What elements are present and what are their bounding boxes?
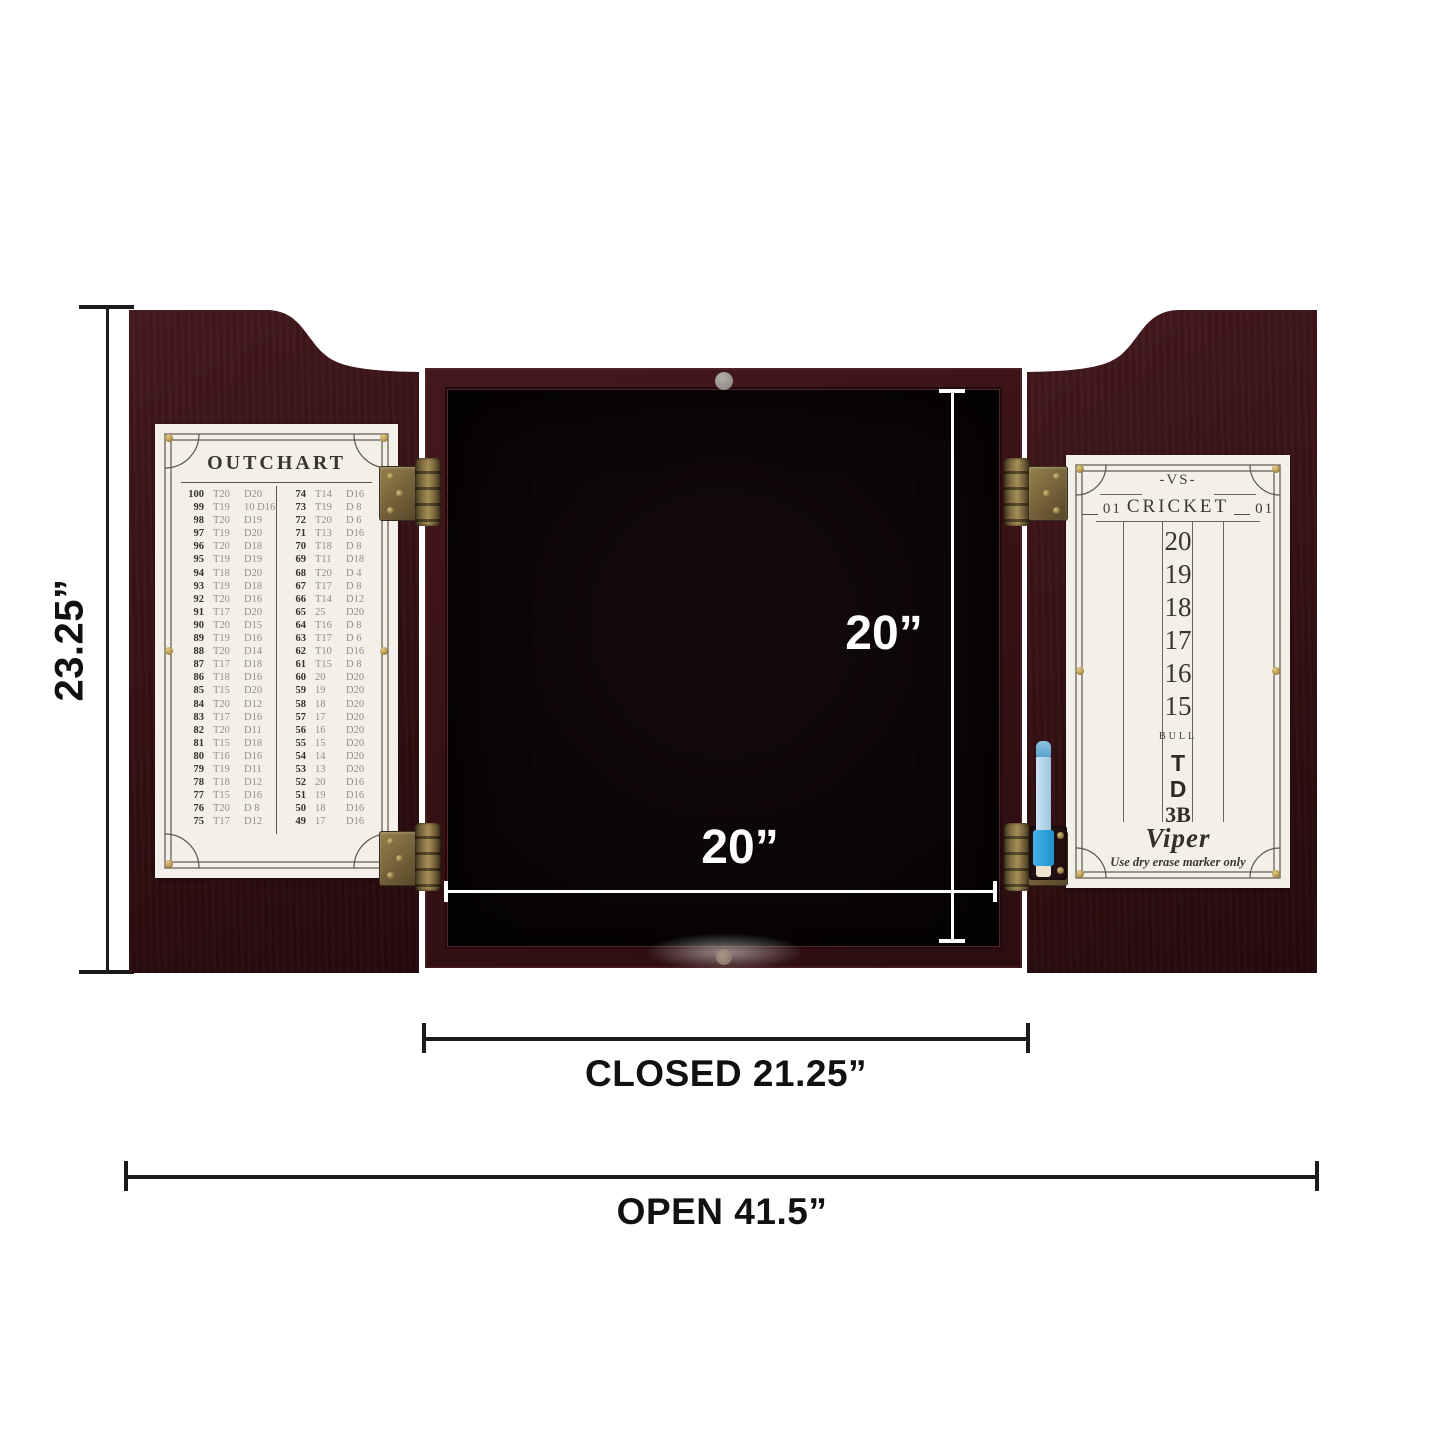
board-width-label: 20” [680,820,800,875]
open-width-label: OPEN 41.5” [422,1191,1022,1233]
outchart-row: 79T19D11 [180,763,273,776]
outchart-row: 77T15D16 [180,789,273,802]
cricket-target: 15 [1165,690,1192,723]
dry-erase-note: Use dry erase marker only [1066,855,1290,870]
cricket-target-column: 201918171615BULLTD3B [1156,525,1200,828]
outchart-row: 70T18D 8 [282,540,375,553]
outchart-row: 86T18D16 [180,671,273,684]
outchart-row: 76T20D 8 [180,802,273,815]
cricket-scoreboard-card: -VS- 01CRICKET01 201918171615BULLTD3B Vi… [1066,455,1290,888]
outchart-row: 93T19D18 [180,580,273,593]
dartboard-cabinet-body [425,368,1022,968]
hinge-plate [1028,466,1068,521]
marker-cap [1036,741,1051,757]
outchart-row: 5220D16 [282,776,375,789]
dry-erase-marker [1036,757,1051,830]
outchart-row: 81T15D18 [180,737,273,750]
board-width-cap-right [993,881,997,902]
vs-label: -VS- [1066,472,1290,489]
outchart-row: 99T1910 D16 [180,501,273,514]
cricket-header: 01CRICKET01 [1066,499,1290,518]
outchart-row: 92T20D16 [180,593,273,606]
outchart-row: 62T10D16 [282,645,375,658]
outchart-row: 84T20D12 [180,698,273,711]
outchart-row: 63T17D 6 [282,632,375,645]
outchart-row: 83T17D16 [180,711,273,724]
board-width-dimension-line [446,890,995,893]
outchart-row: 85T15D20 [180,684,273,697]
outchart-row: 5515D20 [282,737,375,750]
outchart-row: 61T15D 8 [282,658,375,671]
card-screw [165,434,173,442]
outchart-row: 5717D20 [282,711,375,724]
card-screw [1076,465,1084,473]
player-name-line-left [1100,494,1142,495]
outchart-row: 5616D20 [282,724,375,737]
outchart-row: 89T19D16 [180,632,273,645]
outchart-row: 95T19D19 [180,553,273,566]
cricket-target: 20 [1165,525,1192,558]
outchart-row: 71T13D16 [282,527,375,540]
height-dimension-label: 23.25” [48,578,93,701]
mounting-hole-bottom [716,949,732,965]
outchart-row: 4917D16 [282,815,375,828]
outchart-row: 6525D20 [282,606,375,619]
outchart-row: 6020D20 [282,671,375,684]
hinge-barrel [1004,823,1030,891]
cricket-target: D [1170,776,1187,802]
outchart-row: 94T18D20 [180,567,273,580]
outchart-row: 87T17D18 [180,658,273,671]
cricket-target: BULL [1159,723,1197,750]
outchart-row: 82T20D11 [180,724,273,737]
closed-width-dimension-line [424,1037,1028,1041]
outchart-row: 5818D20 [282,698,375,711]
cricket-target: 19 [1165,558,1192,591]
outchart-row: 88T20D14 [180,645,273,658]
outchart-title-underline [181,482,372,483]
outchart-title: OUTCHART [155,452,398,475]
board-height-label: 20” [824,606,944,661]
hinge-barrel [415,823,441,891]
cricket-target: 18 [1165,591,1192,624]
board-height-cap-bottom [939,939,965,943]
card-screw [1076,870,1084,878]
outchart-row: 73T19D 8 [282,501,375,514]
outchart-row: 66T14D12 [282,593,375,606]
closed-width-cap-left [422,1023,426,1053]
card-screw [1272,465,1280,473]
score-grid-line [1123,522,1124,822]
outchart-row: 5919D20 [282,684,375,697]
cricket-title: CRICKET [1127,496,1229,518]
card-screw [380,647,388,655]
outchart-row: 100T20D20 [180,488,273,501]
card-screw [1272,870,1280,878]
outchart-row: 96T20D18 [180,540,273,553]
cricket-header-underline [1096,521,1260,522]
board-width-cap-left [444,881,448,902]
outchart-column-divider [276,486,277,834]
open-width-dimension-line [126,1175,1317,1179]
card-screw [1272,667,1280,675]
outchart-row: 68T20D 4 [282,567,375,580]
card-screw [165,647,173,655]
outchart-row: 91T17D20 [180,606,273,619]
card-screw [1076,667,1084,675]
closed-width-cap-right [1026,1023,1030,1053]
height-dimension-cap-bottom [79,970,134,974]
outchart-row: 69T11D18 [282,553,375,566]
outchart-row: 5313D20 [282,763,375,776]
outchart-row: 74T14D16 [282,488,375,501]
outchart-row: 5119D16 [282,789,375,802]
viper-logo: Viper [1066,823,1290,854]
outchart-row: 64T16D 8 [282,619,375,632]
score-blank-line [1082,514,1098,515]
outchart-row: 67T17D 8 [282,580,375,593]
mounting-hole-top [715,372,733,390]
marker-grip [1033,830,1054,866]
height-dimension-cap-top [79,305,134,309]
hinge-plate [379,466,419,521]
cricket-target: 16 [1165,657,1192,690]
score-grid-line [1223,522,1224,822]
closed-width-label: CLOSED 21.25” [426,1053,1026,1095]
hinge-plate [379,831,419,886]
outchart-row: 5414D20 [282,750,375,763]
card-screw [380,434,388,442]
height-dimension-line [106,307,109,973]
outchart-row: 97T19D20 [180,527,273,540]
outchart-row: 90T20D15 [180,619,273,632]
outchart-row: 78T18D12 [180,776,273,789]
cricket-target: T [1171,750,1185,776]
outchart-row: 5018D16 [282,802,375,815]
board-height-cap-top [939,389,965,393]
hinge-barrel [1004,458,1030,526]
player-name-line-right [1214,494,1256,495]
right-01-label: 01 [1255,501,1274,518]
dartboard-cabinet-dimension-image: 23.25” OUTCHART 100T20D2099T1910 D1698T2… [0,0,1445,1445]
outchart-row: 80T16D16 [180,750,273,763]
marker-tip [1036,866,1051,877]
score-blank-line [1234,514,1250,515]
outchart-column-right: 74T14D1673T19D 872T20D 671T13D1670T18D 8… [282,488,375,828]
outchart-column-left: 100T20D2099T1910 D1698T20D1997T19D2096T2… [180,488,273,828]
hinge-barrel [415,458,441,526]
outchart-row: 75T17D12 [180,815,273,828]
open-width-cap-right [1315,1161,1319,1191]
outchart-row: 72T20D 6 [282,514,375,527]
left-01-label: 01 [1103,501,1122,518]
board-height-dimension-line [951,391,954,942]
outchart-card: OUTCHART 100T20D2099T1910 D1698T20D1997T… [155,424,398,878]
outchart-row: 98T20D19 [180,514,273,527]
card-screw [165,860,173,868]
open-width-cap-left [124,1161,128,1191]
cricket-target: 17 [1165,624,1192,657]
